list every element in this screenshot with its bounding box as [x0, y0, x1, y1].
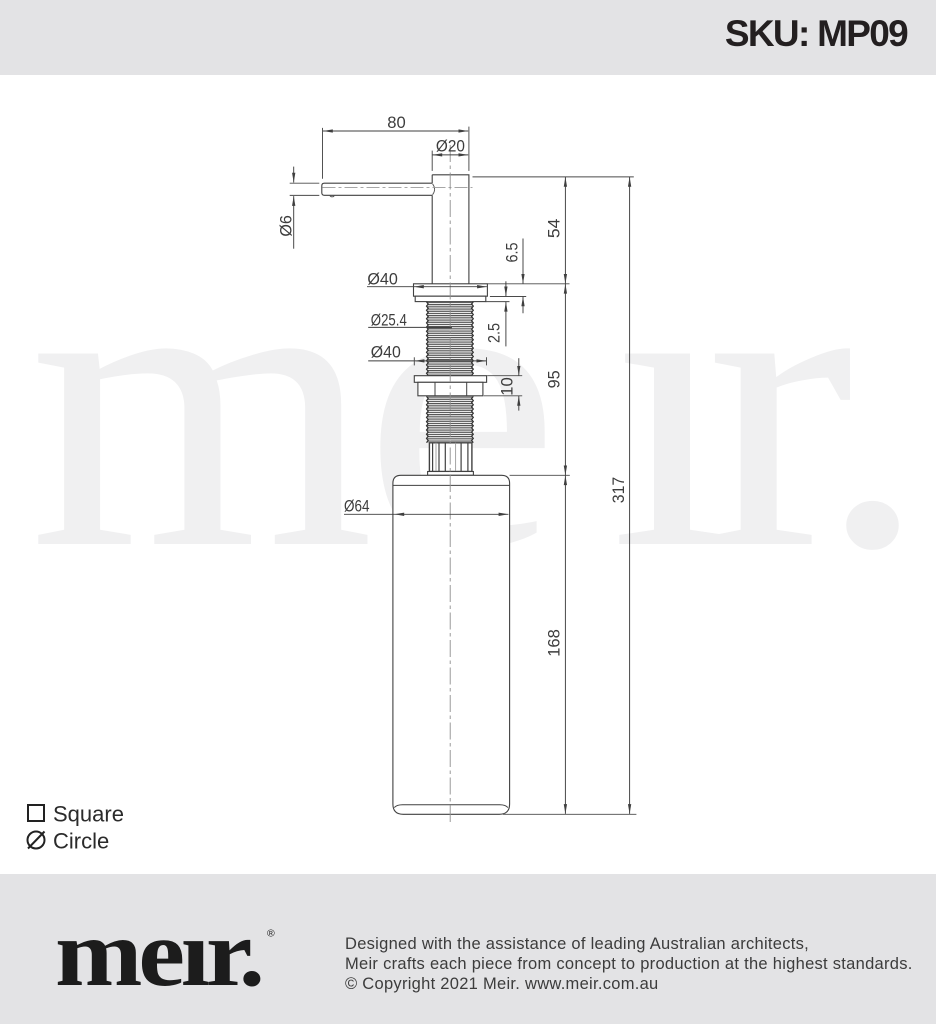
- svg-text:Ø40: Ø40: [371, 342, 401, 361]
- svg-text:Ø25.4: Ø25.4: [371, 310, 407, 329]
- svg-text:10: 10: [498, 377, 517, 396]
- svg-text:Ø64: Ø64: [344, 497, 370, 516]
- svg-text:6.5: 6.5: [503, 243, 522, 263]
- svg-text:Circle: Circle: [53, 828, 109, 853]
- svg-text:54: 54: [545, 219, 564, 239]
- svg-text:Ø6: Ø6: [277, 215, 296, 237]
- svg-text:Ø40: Ø40: [367, 269, 398, 288]
- svg-text:95: 95: [545, 370, 564, 388]
- svg-text:317: 317: [609, 477, 628, 504]
- svg-text:168: 168: [545, 629, 564, 657]
- svg-text:2.5: 2.5: [485, 323, 504, 343]
- svg-text:Ø20: Ø20: [436, 136, 465, 155]
- svg-text:meır.: meır.: [55, 900, 265, 1005]
- svg-text:80: 80: [387, 113, 406, 132]
- svg-text:®: ®: [267, 928, 275, 940]
- svg-text:Square: Square: [53, 802, 124, 827]
